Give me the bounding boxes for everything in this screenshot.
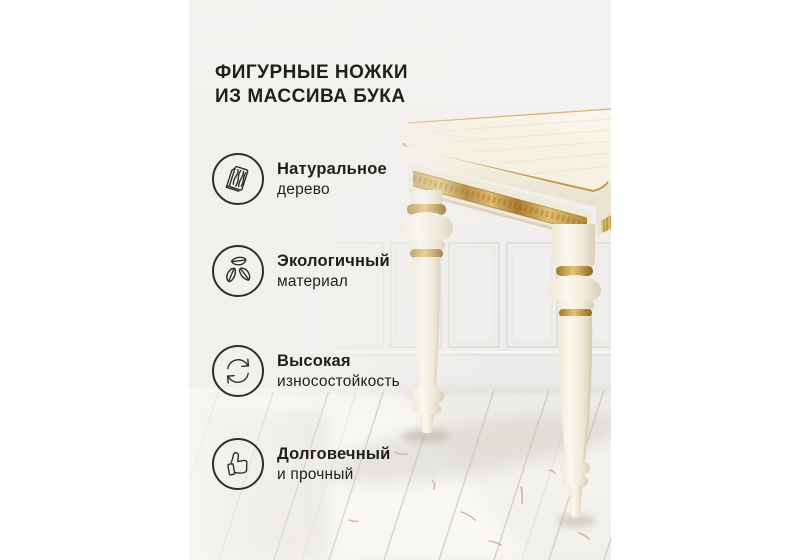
product-card: ФИГУРНЫЕ НОЖКИ ИЗ МАССИВА БУКА <box>189 0 611 560</box>
feature-text: Высокая износостойкость <box>277 345 400 392</box>
thumbs-up-icon <box>212 438 264 490</box>
feature-wear-resistance: Высокая износостойкость <box>212 345 400 397</box>
text-overlay: ФИГУРНЫЕ НОЖКИ ИЗ МАССИВА БУКА <box>189 0 611 560</box>
feature-line-2: и прочный <box>277 465 391 485</box>
page-canvas: { "card": { "title_line1": "ФИГУРНЫЕ НОЖ… <box>0 0 800 560</box>
page-title: ФИГУРНЫЕ НОЖКИ ИЗ МАССИВА БУКА <box>215 61 408 109</box>
wear-refresh-icon <box>212 345 264 397</box>
feature-eco-material: Экологичный материал <box>212 245 390 297</box>
feature-line-2: материал <box>277 272 390 292</box>
feature-text: Долговечный и прочный <box>277 438 391 485</box>
feature-text: Натуральное дерево <box>277 153 387 200</box>
feature-durable: Долговечный и прочный <box>212 438 391 490</box>
wood-plank-icon <box>212 153 264 205</box>
eco-leaves-icon <box>212 245 264 297</box>
feature-line-1: Натуральное <box>277 159 387 180</box>
title-line-1: ФИГУРНЫЕ НОЖКИ <box>215 61 408 85</box>
feature-line-1: Высокая <box>277 351 400 372</box>
feature-text: Экологичный материал <box>277 245 390 292</box>
feature-line-1: Долговечный <box>277 444 391 465</box>
title-line-2: ИЗ МАССИВА БУКА <box>215 85 408 109</box>
feature-line-1: Экологичный <box>277 251 390 272</box>
feature-natural-wood: Натуральное дерево <box>212 153 387 205</box>
feature-line-2: износостойкость <box>277 372 400 392</box>
feature-line-2: дерево <box>277 180 387 200</box>
